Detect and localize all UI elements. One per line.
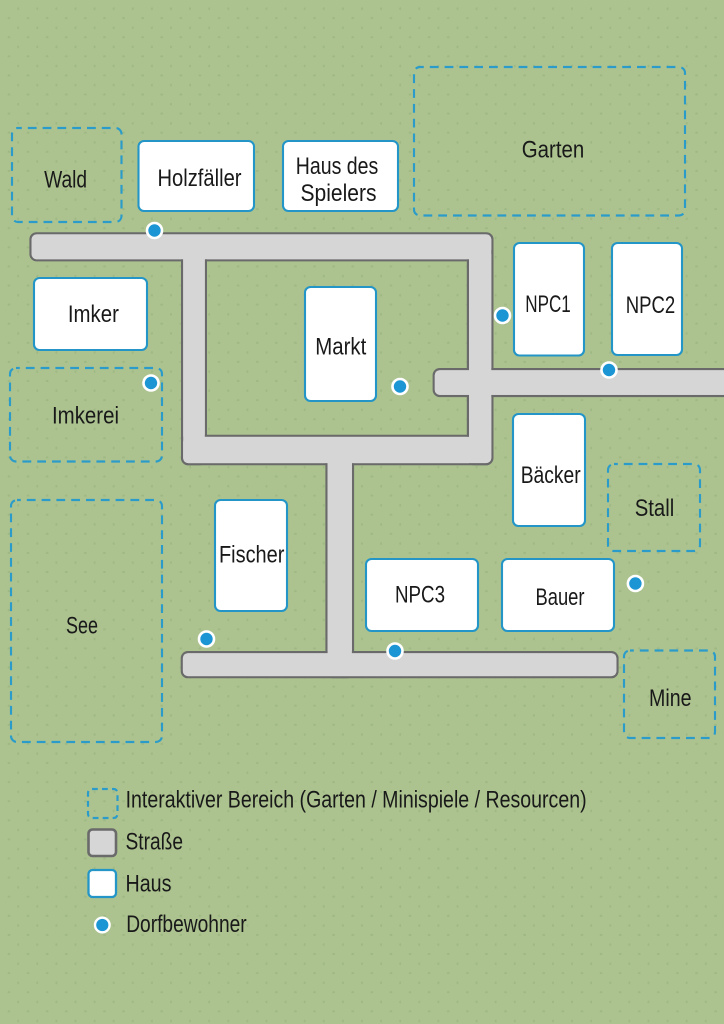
svg-text:Imkerei: Imkerei [52,403,119,430]
svg-text:See: See [66,613,98,640]
svg-text:Mine: Mine [649,685,692,712]
svg-text:Wald: Wald [44,167,87,194]
svg-text:Interaktiver Bereich (Garten /: Interaktiver Bereich (Garten / Minispiel… [126,787,587,814]
svg-text:Imker: Imker [68,301,119,328]
svg-text:NPC3: NPC3 [395,582,445,609]
svg-text:Bäcker: Bäcker [521,462,581,489]
svg-text:Holzfäller: Holzfäller [158,165,242,192]
svg-text:Haus des: Haus des [296,153,379,180]
svg-text:NPC1: NPC1 [525,291,571,318]
svg-text:Markt: Markt [315,334,366,361]
svg-text:Garten: Garten [522,137,585,164]
svg-text:Spielers: Spielers [301,180,377,207]
svg-text:Straße: Straße [126,829,184,856]
svg-text:Haus: Haus [126,871,172,898]
svg-text:Stall: Stall [635,495,675,522]
svg-text:Dorfbewohner: Dorfbewohner [126,911,247,938]
svg-text:NPC2: NPC2 [626,292,676,319]
svg-text:Fischer: Fischer [219,542,285,569]
svg-text:Bauer: Bauer [536,584,585,611]
